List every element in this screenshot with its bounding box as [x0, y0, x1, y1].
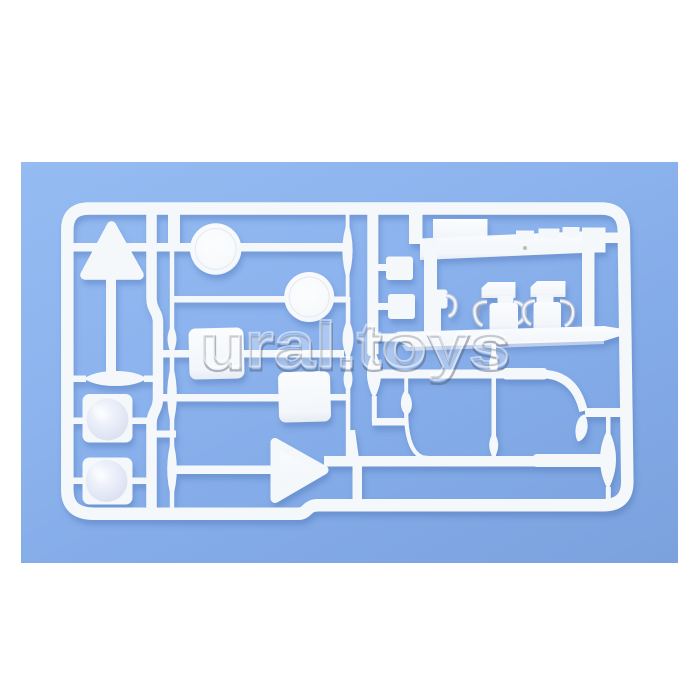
- svg-text:ural.toys: ural.toys: [200, 311, 511, 383]
